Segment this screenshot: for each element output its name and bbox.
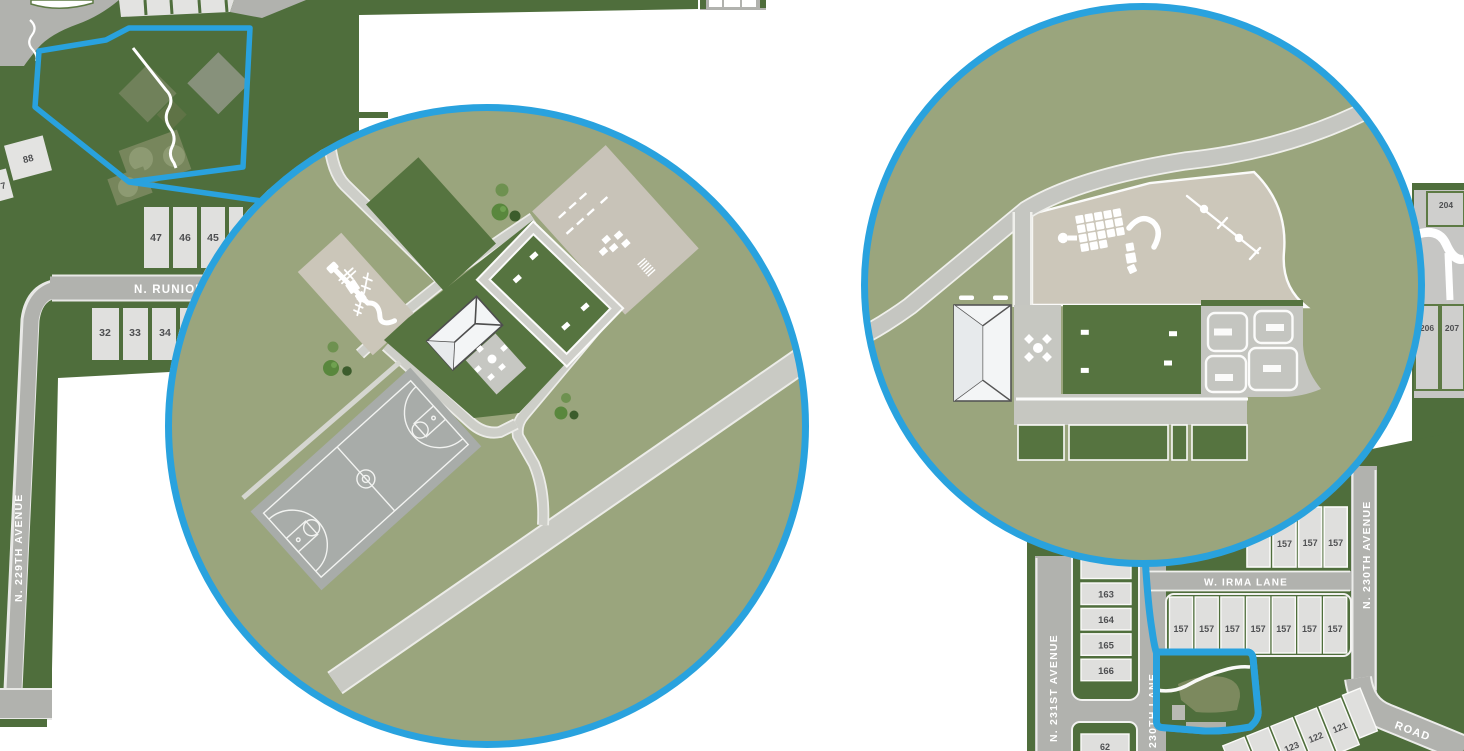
svg-text:62: 62	[1100, 742, 1110, 751]
svg-text:165: 165	[1098, 640, 1115, 651]
svg-text:157: 157	[1328, 624, 1343, 634]
svg-text:166: 166	[1098, 666, 1114, 677]
svg-text:33: 33	[129, 327, 141, 339]
svg-text:45: 45	[207, 232, 219, 244]
svg-text:164: 164	[1098, 615, 1115, 626]
svg-text:163: 163	[1098, 590, 1114, 601]
svg-text:157: 157	[1225, 624, 1240, 634]
svg-text:34: 34	[159, 327, 171, 339]
svg-text:207: 207	[1445, 323, 1459, 333]
svg-text:204: 204	[1439, 200, 1453, 210]
svg-text:157: 157	[1277, 539, 1292, 549]
svg-text:157: 157	[1251, 624, 1266, 634]
svg-text:N. 231ST AVENUE: N. 231ST AVENUE	[1048, 634, 1060, 742]
svg-text:157: 157	[1276, 624, 1291, 634]
svg-text:N. 230TH AVENUE: N. 230TH AVENUE	[1361, 501, 1373, 609]
svg-text:157: 157	[1173, 624, 1188, 634]
svg-text:47: 47	[150, 232, 162, 244]
svg-text:N. 229TH AVENUE: N. 229TH AVENUE	[13, 494, 25, 602]
svg-text:157: 157	[1328, 538, 1343, 548]
svg-text:157: 157	[1303, 538, 1318, 548]
svg-text:46: 46	[179, 232, 191, 244]
svg-text:157: 157	[1302, 624, 1317, 634]
svg-text:32: 32	[99, 327, 111, 339]
svg-text:W. IRMA LANE: W. IRMA LANE	[1204, 578, 1288, 589]
svg-text:157: 157	[1199, 624, 1214, 634]
